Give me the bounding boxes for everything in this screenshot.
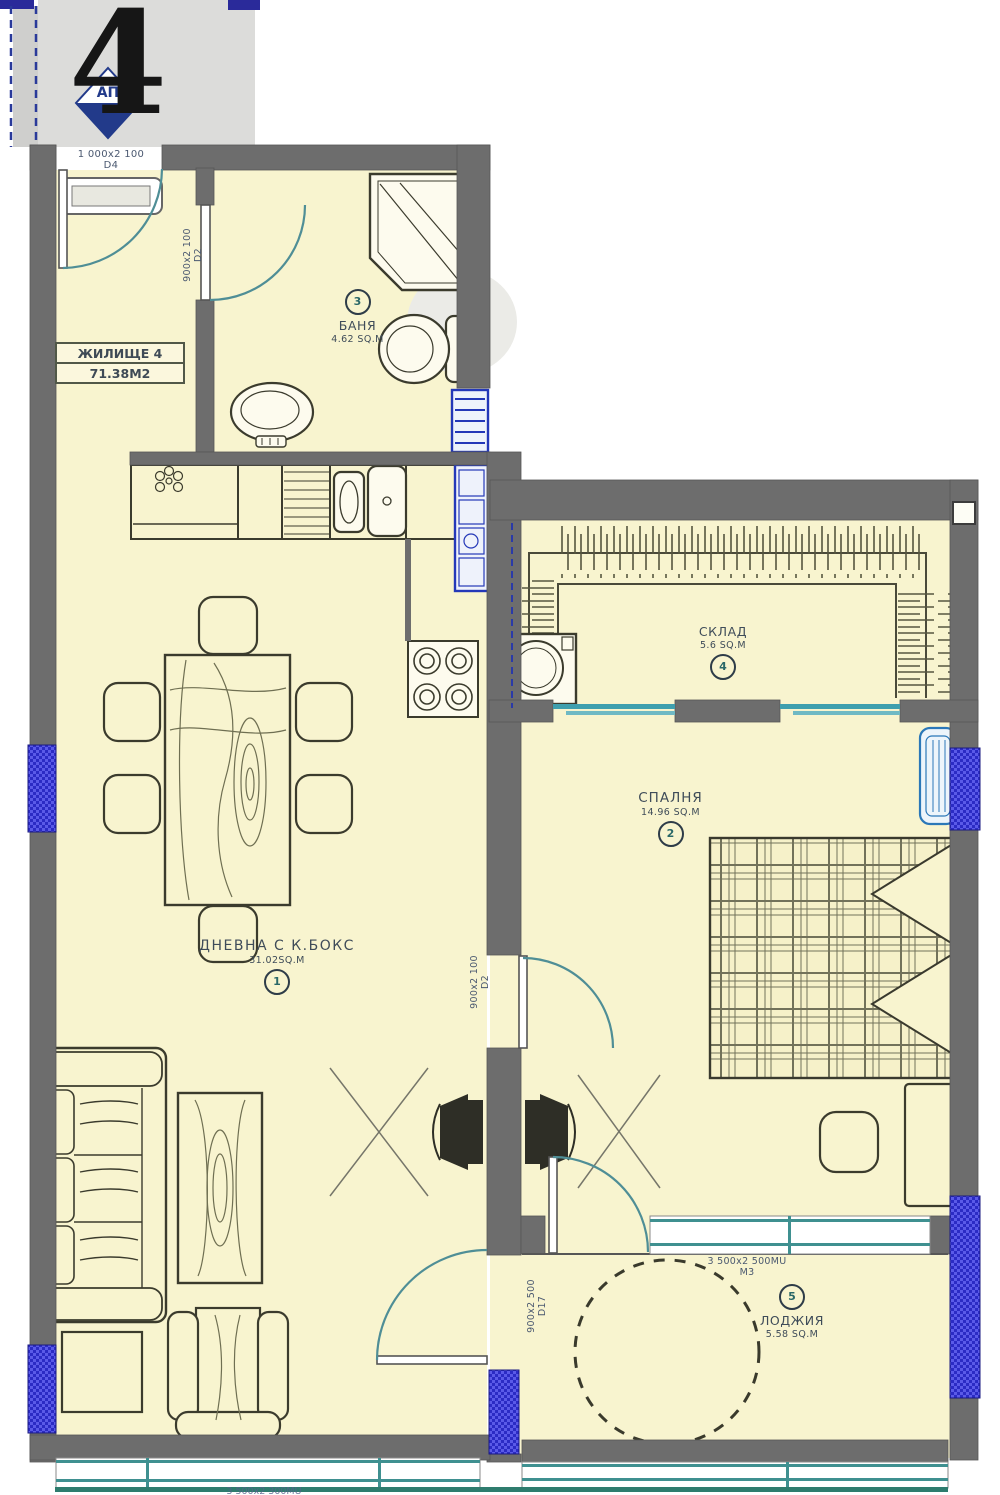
apartment-number: 4	[58, 0, 178, 140]
floorplan-drawing: АП	[0, 0, 1000, 1495]
room-label-living: ДНЕВНА С К.БОКС 31.02SQ.M 1	[187, 938, 367, 998]
room-area: 5.6 SQ.M	[663, 640, 783, 651]
wall-stub	[405, 539, 411, 641]
wall-strip	[13, 6, 38, 147]
wall	[522, 1440, 948, 1462]
door-size: 900х2 100	[470, 934, 481, 1030]
room-area: 14.96 SQ.M	[608, 807, 733, 818]
window	[489, 1370, 519, 1454]
chair	[104, 683, 160, 741]
door-mark: D2	[194, 207, 205, 303]
coffee-table	[178, 1093, 262, 1283]
room-label-storage: СКЛАД 5.6 SQ.M 4	[663, 624, 783, 683]
wall	[487, 1048, 521, 1255]
column	[953, 502, 975, 524]
wall	[30, 832, 56, 1345]
door-mark: D17	[538, 1260, 549, 1352]
armchair	[168, 1308, 288, 1438]
wall	[675, 700, 780, 722]
wall	[521, 1216, 545, 1254]
towel-radiator	[452, 390, 488, 452]
hanging-clothes-hatch	[560, 526, 920, 578]
bed	[710, 838, 958, 1078]
door-mark: D4	[58, 160, 164, 171]
room-label-bedroom: СПАЛНЯ 14.96 SQ.M 2	[608, 790, 733, 850]
door-label-bedroom: 900х2 100 D2	[470, 934, 491, 1030]
chair	[296, 775, 352, 833]
door-leaf-bedroom	[519, 956, 527, 1048]
room-name: ДНЕВНА С К.БОКС	[187, 938, 367, 954]
window	[28, 1345, 56, 1433]
wall	[30, 145, 56, 745]
window	[28, 745, 56, 832]
blue-bar	[228, 0, 260, 10]
sofa	[38, 1048, 166, 1322]
room-area: 4.62 SQ.M	[300, 334, 415, 345]
room-name: СПАЛНЯ	[608, 790, 733, 806]
wall	[130, 452, 490, 465]
room-number-badge: 3	[345, 289, 371, 315]
door-size: 900х2 500	[527, 1260, 538, 1352]
wall	[196, 168, 214, 205]
unit-area: 71.38М2	[57, 364, 183, 382]
room-name: ЛОДЖИЯ	[737, 1313, 847, 1328]
wall	[196, 300, 214, 452]
door-leaf-loggia-bedroom	[549, 1157, 557, 1253]
side-table	[62, 1332, 142, 1412]
room-label-bath: 3 БАНЯ 4.62 SQ.M	[300, 286, 415, 345]
door-mark: D2	[481, 934, 492, 1030]
door-size: 1 000х2 100	[58, 149, 164, 160]
shelf-hatch	[898, 590, 950, 696]
room-area: 5.58 SQ.M	[737, 1329, 847, 1340]
blue-bar	[0, 0, 34, 9]
chair	[296, 683, 352, 741]
wall	[162, 145, 490, 170]
wall	[490, 480, 978, 520]
wall	[30, 1435, 490, 1460]
wall	[900, 700, 978, 722]
chair	[104, 775, 160, 833]
floorplan-canvas: АП	[0, 0, 1000, 1495]
window-label-bottom: 3 500х2 300МU	[202, 1486, 326, 1495]
door-leaf-entry	[59, 170, 67, 268]
door-leaf-loggia-living	[377, 1356, 487, 1364]
door-label-loggia: 900х2 500 D17	[527, 1260, 548, 1352]
kitchen-sink	[334, 466, 406, 536]
window-size: 3 500х2 500МU	[688, 1256, 806, 1267]
door-label-entry: 1 000х2 100 D4	[58, 149, 164, 171]
window-label-loggia: 3 500х2 500МU М3	[688, 1256, 806, 1278]
wall	[489, 700, 553, 722]
room-area: 31.02SQ.M	[187, 955, 367, 966]
room-name: СКЛАД	[663, 624, 783, 639]
room-name: БАНЯ	[300, 318, 415, 333]
shower-cabin	[370, 174, 468, 290]
room-number-badge: 1	[264, 969, 290, 995]
chair	[199, 597, 257, 654]
room-label-loggia: 5 ЛОДЖИЯ 5.58 SQ.M	[737, 1281, 847, 1340]
room-number-badge: 5	[779, 1284, 805, 1310]
unit-title: ЖИЛИЩЕ 4	[57, 344, 183, 364]
room-number-badge: 4	[710, 654, 736, 680]
window	[950, 1196, 980, 1398]
wall	[487, 1454, 521, 1462]
stool	[820, 1112, 878, 1172]
fridge	[455, 465, 488, 591]
room-number-badge: 2	[658, 821, 684, 847]
entry-threshold-inner	[72, 186, 150, 206]
window	[950, 748, 980, 830]
wall	[457, 145, 490, 388]
door-size: 900х2 100	[183, 207, 194, 303]
window-mark: М3	[688, 1267, 806, 1278]
stove	[408, 641, 478, 717]
door-label-bath: 900х2 100 D2	[183, 207, 204, 303]
nightstand	[905, 1084, 957, 1206]
unit-label-box: ЖИЛИЩЕ 4 71.38М2	[55, 342, 185, 384]
